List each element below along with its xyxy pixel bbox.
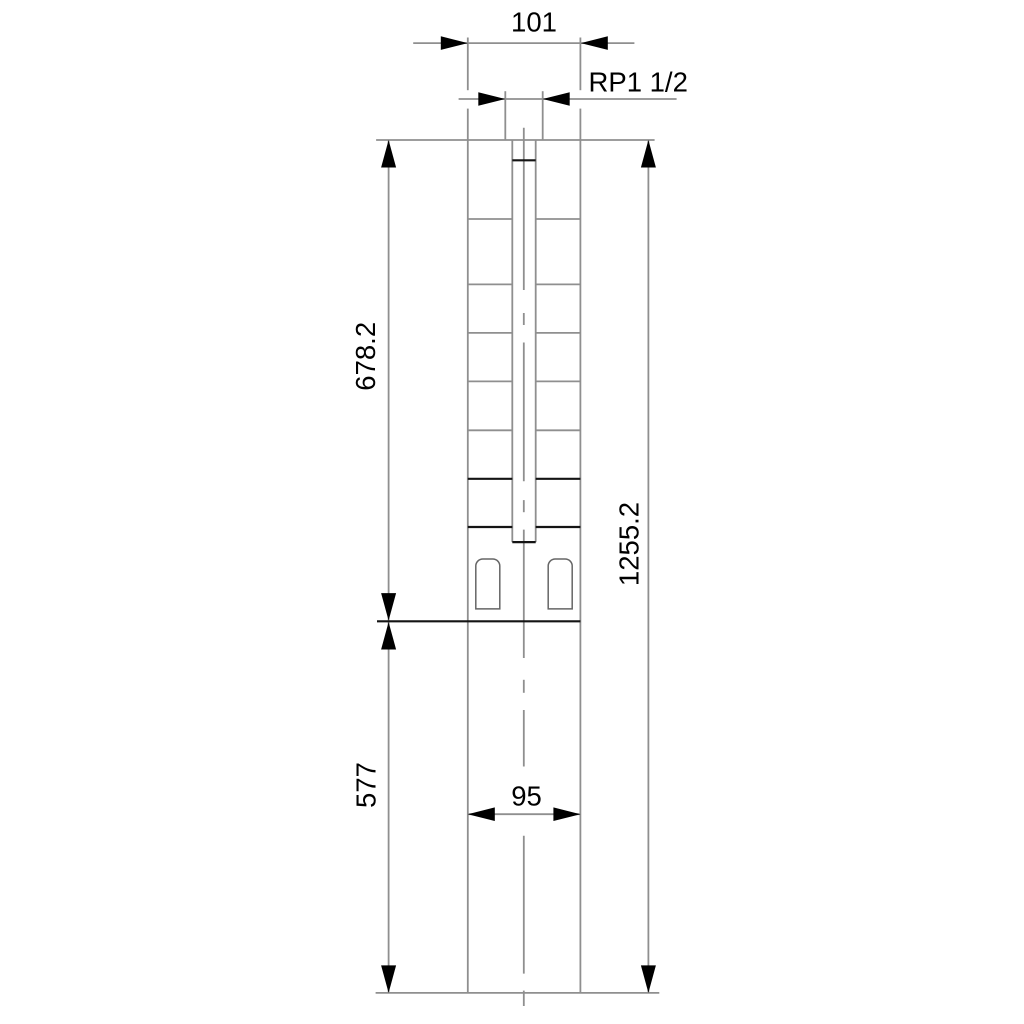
svg-text:RP1 1/2: RP1 1/2 [589, 66, 688, 97]
svg-text:678.2: 678.2 [350, 322, 381, 391]
svg-text:101: 101 [511, 7, 557, 38]
svg-text:95: 95 [511, 780, 542, 811]
svg-text:1255.2: 1255.2 [614, 502, 645, 586]
svg-text:577: 577 [351, 762, 382, 808]
